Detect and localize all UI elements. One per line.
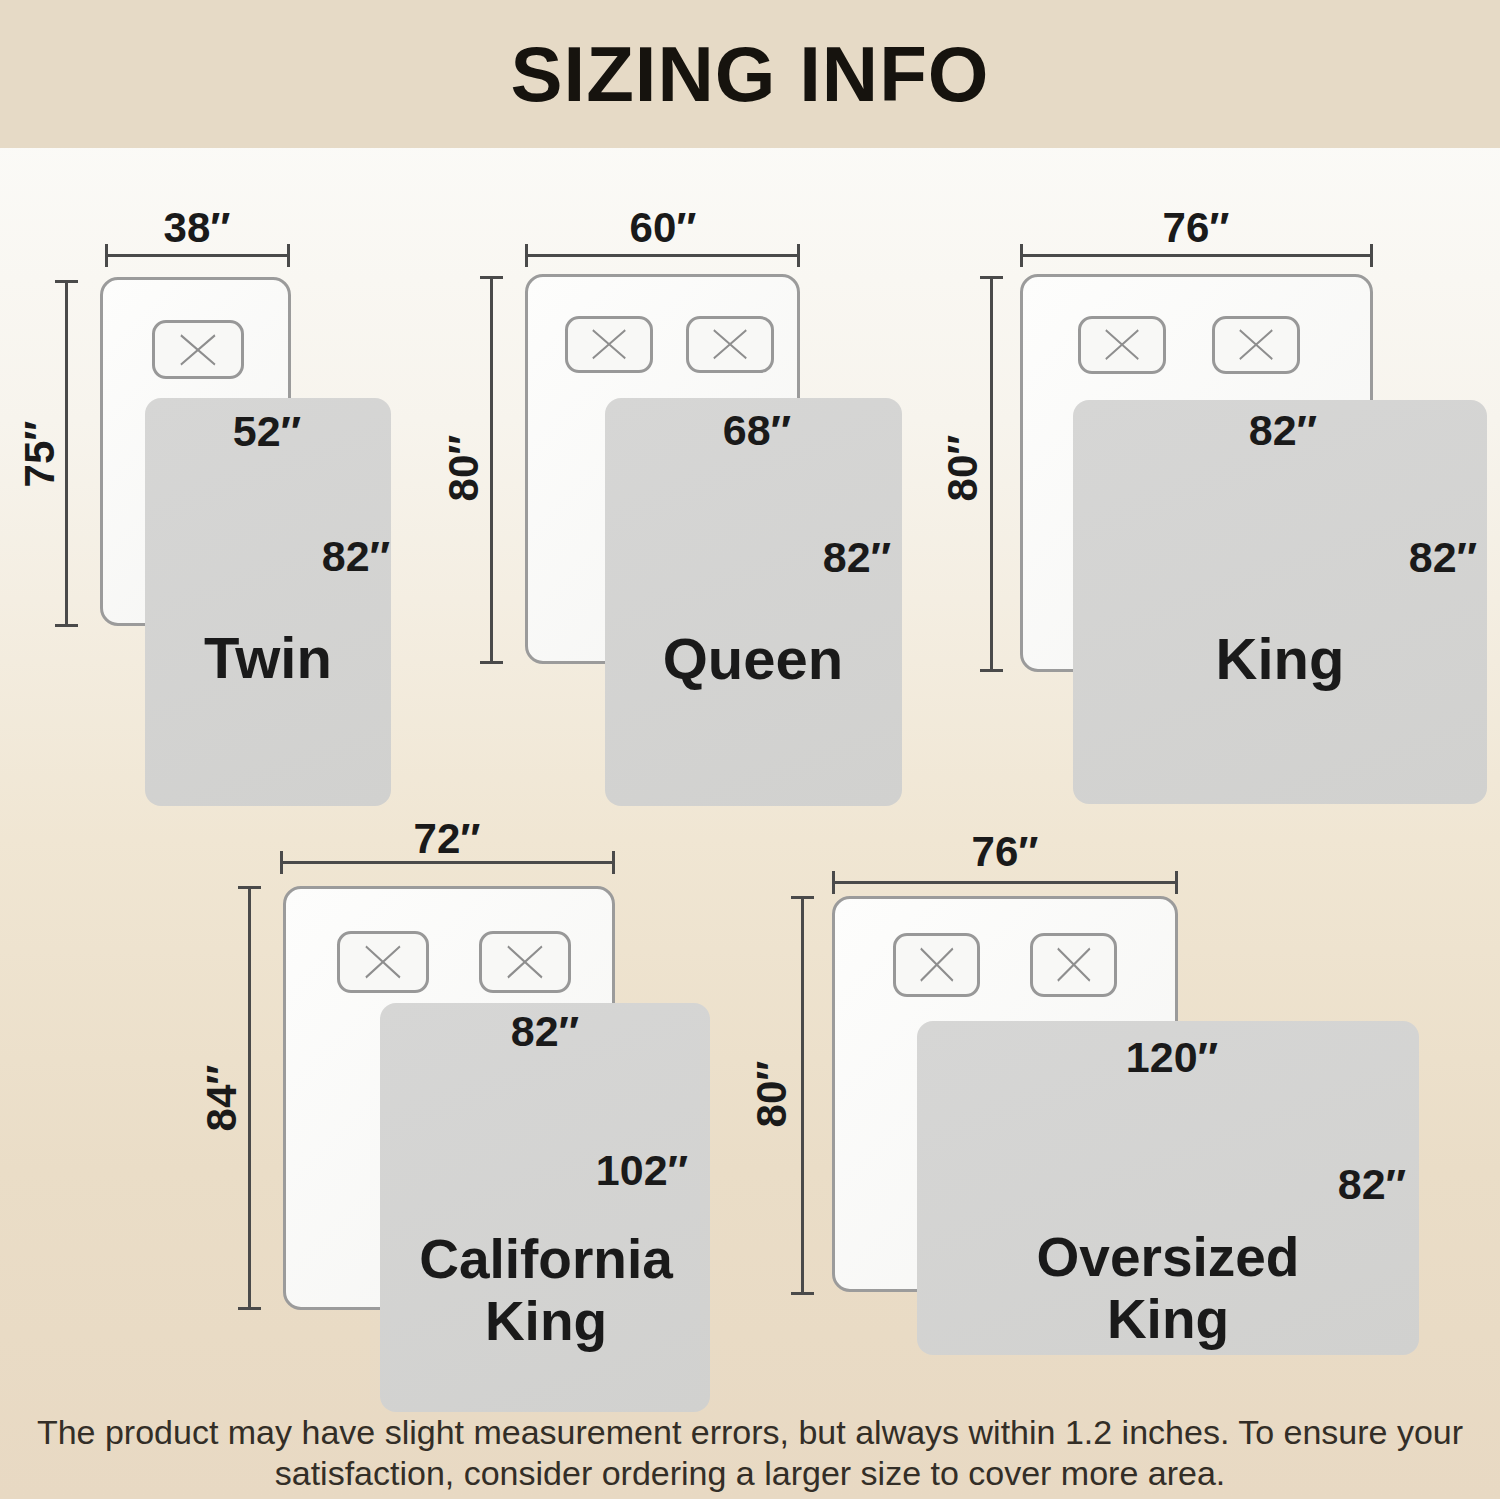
sizing-infographic: SIZING INFO 38″ 75″ 52″ 82″ Twin 60″ 80″ (0, 0, 1500, 1499)
blanket-width-label: 68″ (723, 406, 791, 455)
pillow (479, 931, 571, 993)
disclaimer-text: The product may have slight measurement … (0, 1412, 1500, 1494)
bed-length-dimension-line (990, 276, 993, 672)
bed-length-label: 80″ (939, 435, 987, 502)
blanket (605, 398, 902, 806)
blanket (145, 398, 391, 806)
pillow (152, 320, 244, 379)
pillow (1212, 316, 1300, 374)
bed-width-dimension-line (525, 254, 800, 257)
pillow (1030, 933, 1117, 997)
blanket-width-label: 82″ (1249, 406, 1317, 455)
size-name-label: King (1216, 625, 1345, 692)
size-name-label: Oversized King (1037, 1226, 1300, 1350)
blanket-length-label: 102″ (596, 1146, 688, 1195)
pillow-x-icon (591, 328, 627, 361)
size-name-label: Queen (663, 625, 844, 692)
size-name-label: California King (419, 1228, 673, 1352)
bed-width-label: 72″ (414, 815, 481, 863)
pillow-x-icon (1056, 946, 1092, 983)
bed-length-dimension-line (248, 886, 251, 1310)
pillow (1078, 316, 1166, 374)
pillow-x-icon (506, 944, 544, 980)
pillow (686, 316, 774, 373)
blanket-length-label: 82″ (1409, 533, 1477, 582)
pillow (565, 316, 653, 373)
blanket-length-label: 82″ (1338, 1160, 1406, 1209)
pillow (337, 931, 429, 993)
bed-width-label: 76″ (972, 828, 1039, 876)
bed-length-dimension-line (490, 276, 493, 664)
bed-width-label: 38″ (164, 204, 231, 252)
bed-length-label: 80″ (748, 1061, 796, 1128)
pillow-x-icon (179, 333, 217, 367)
disclaimer-line-2: satisfaction, consider ordering a larger… (0, 1453, 1500, 1494)
bed-length-label: 84″ (198, 1065, 246, 1132)
pillow-x-icon (712, 328, 748, 361)
pillow-x-icon (919, 946, 955, 983)
pillow (893, 933, 980, 997)
blanket-length-label: 82″ (823, 533, 891, 582)
bed-length-label: 75″ (16, 421, 64, 488)
size-name-label: Twin (204, 624, 332, 691)
bed-width-label: 60″ (630, 204, 697, 252)
pillow-x-icon (364, 944, 402, 980)
header-band: SIZING INFO (0, 0, 1500, 148)
bed-width-dimension-line (832, 881, 1178, 884)
pillow-x-icon (1238, 328, 1274, 361)
page-title: SIZING INFO (511, 29, 990, 120)
bed-width-label: 76″ (1163, 204, 1230, 252)
pillow-x-icon (1104, 328, 1140, 361)
bed-length-dimension-line (65, 280, 68, 627)
blanket-width-label: 82″ (511, 1007, 579, 1056)
bed-length-dimension-line (801, 896, 804, 1295)
disclaimer-line-1: The product may have slight measurement … (0, 1412, 1500, 1453)
blanket (1073, 400, 1487, 804)
blanket-width-label: 52″ (233, 407, 301, 456)
blanket-width-label: 120″ (1126, 1033, 1218, 1082)
bed-length-label: 80″ (440, 435, 488, 502)
bed-width-dimension-line (1020, 254, 1373, 257)
bed-width-dimension-line (105, 254, 290, 257)
blanket-length-label: 82″ (322, 532, 390, 581)
